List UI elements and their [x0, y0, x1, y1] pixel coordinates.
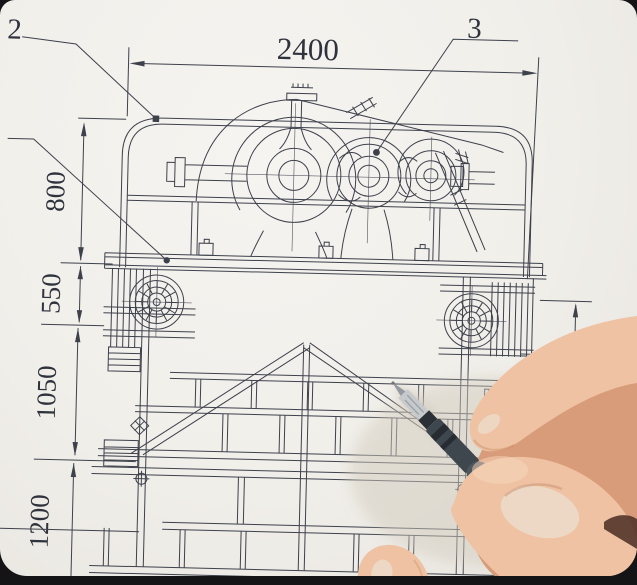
paper-sheet: 2400 800 550 1050 1200	[0, 0, 637, 576]
frame-structure	[105, 117, 551, 279]
callout-3: 3	[373, 10, 519, 159]
dim-label-550: 550	[35, 273, 66, 314]
thumb-highlight	[472, 456, 528, 484]
dim-label-800: 800	[40, 171, 71, 212]
dim-label-1200: 1200	[24, 494, 55, 549]
gearbox-front-view	[165, 80, 505, 262]
dimension-2400: 2400	[123, 27, 539, 279]
callout-2: 2	[2, 13, 176, 263]
dim-label-1050: 1050	[31, 365, 62, 420]
left-bearing	[121, 266, 193, 338]
dim-label-2400: 2400	[277, 31, 340, 68]
photo-card: 2400 800 550 1050 1200	[0, 0, 637, 585]
dimension-left-chain: 800 550 1050 1200	[23, 117, 144, 576]
engineering-drawing-photo: 2400 800 550 1050 1200	[0, 0, 637, 576]
callout-2-label: 2	[7, 13, 22, 45]
